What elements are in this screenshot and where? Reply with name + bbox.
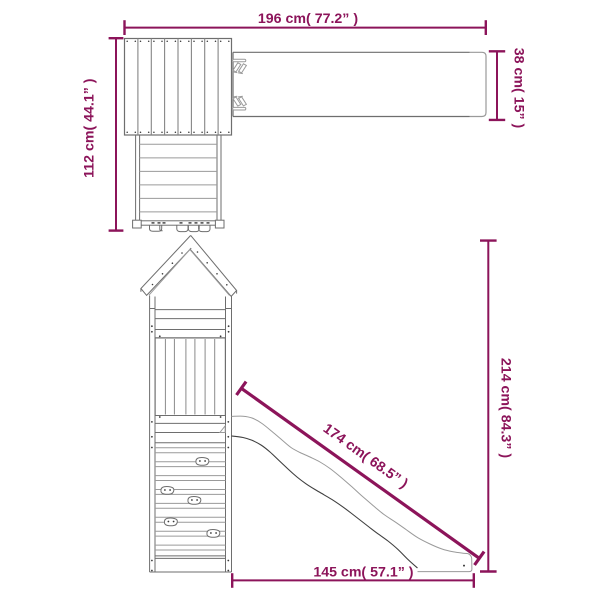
svg-text:196 cm( 77.2” ): 196 cm( 77.2” ) bbox=[258, 11, 358, 27]
svg-text:112 cm( 44.1” ): 112 cm( 44.1” ) bbox=[82, 78, 98, 178]
svg-text:145 cm( 57.1” ): 145 cm( 57.1” ) bbox=[313, 565, 413, 581]
svg-text:38 cm( 15” ): 38 cm( 15” ) bbox=[510, 48, 526, 129]
svg-text:214 cm( 84.3” ): 214 cm( 84.3” ) bbox=[498, 358, 514, 458]
